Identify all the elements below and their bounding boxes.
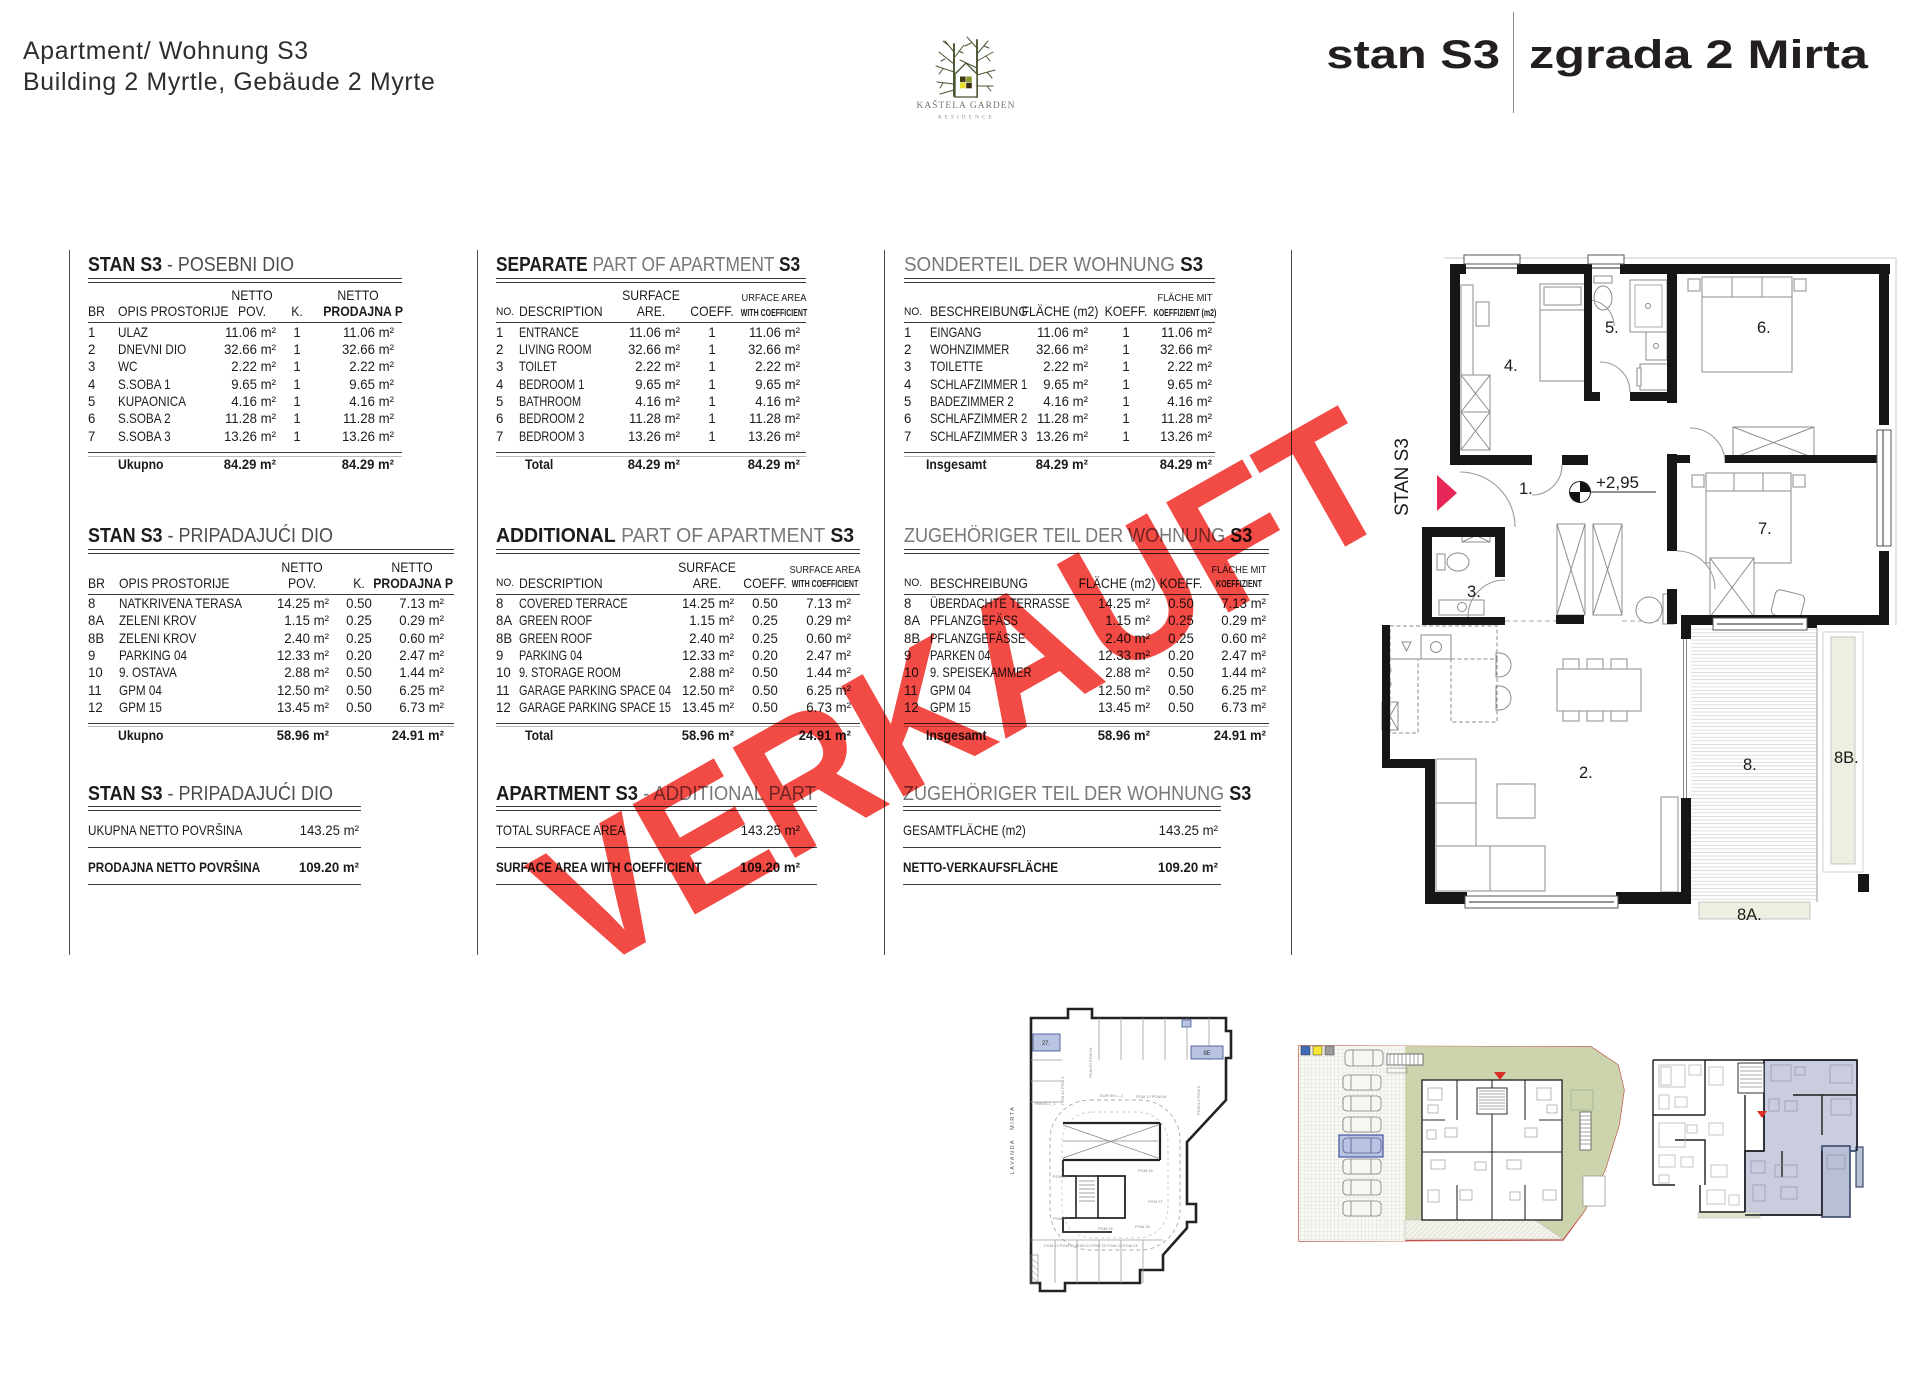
svg-text:8B.: 8B. <box>1834 749 1859 767</box>
svg-text:LAVANDA MIRTA: LAVANDA MIRTA <box>1010 1106 1016 1175</box>
svg-text:PGM 5: PGM 5 <box>1053 1216 1066 1221</box>
svg-text:27.: 27. <box>1042 1041 1051 1047</box>
svg-text:RESIDENCE: RESIDENCE <box>938 115 995 121</box>
svg-text:3.: 3. <box>1467 583 1481 601</box>
svg-text:6.: 6. <box>1757 319 1771 337</box>
svg-text:1.: 1. <box>1519 480 1533 498</box>
svg-text:5.: 5. <box>1605 319 1619 337</box>
svg-text:8A.: 8A. <box>1737 906 1762 924</box>
svg-text:9E: 9E <box>1203 1051 1210 1057</box>
svg-text:EUR.SH-L_1: EUR.SH-L_1 <box>1100 1093 1124 1098</box>
svg-text:PGM 5: PGM 5 <box>1053 1174 1066 1179</box>
svg-text:PGM 16: PGM 16 <box>1138 1168 1153 1173</box>
svg-text:2.: 2. <box>1579 764 1593 782</box>
svg-text:PGM 60 PGM 03: PGM 60 PGM 03 <box>1088 1047 1093 1078</box>
svg-text:PGM 12 PGM 1: PGM 12 PGM 1 <box>1060 1076 1065 1105</box>
svg-text:+2,95: +2,95 <box>1596 473 1639 492</box>
svg-text:4.: 4. <box>1504 357 1518 375</box>
svg-text:PGM 8.2 PGM 6: PGM 8.2 PGM 6 <box>1196 1085 1201 1115</box>
svg-text:8.: 8. <box>1743 756 1757 774</box>
svg-text:TRNSŠ-L_1: TRNSŠ-L_1 <box>1034 1101 1056 1106</box>
svg-text:7.: 7. <box>1758 520 1772 538</box>
svg-text:PGM 27: PGM 27 <box>1148 1199 1163 1204</box>
svg-text:PGM 26: PGM 26 <box>1135 1224 1150 1229</box>
svg-text:PGM 19 PGM 20 PGM 21 PGM 22 PG: PGM 19 PGM 20 PGM 21 PGM 22 PGM 23 PGM 2… <box>1044 1243 1138 1248</box>
svg-text:PGM 3? PGM 06: PGM 3? PGM 06 <box>1136 1094 1167 1099</box>
svg-text:KAŠTELA GARDEN: KAŠTELA GARDEN <box>917 99 1016 111</box>
svg-text:PGM 25: PGM 25 <box>1098 1226 1113 1231</box>
